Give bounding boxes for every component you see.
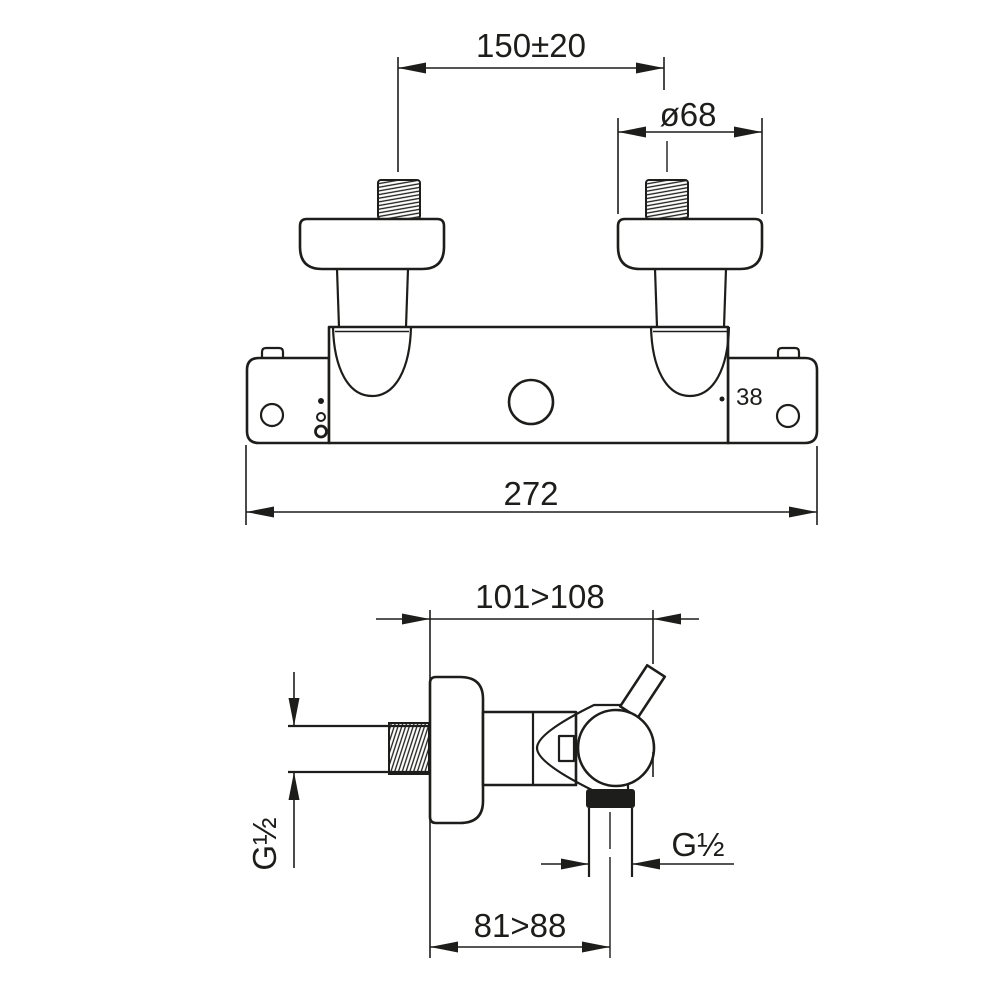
connector-neck-right <box>655 269 726 327</box>
escutcheon-left <box>300 219 444 269</box>
escutcheon-right <box>618 219 762 269</box>
arrowhead-up <box>289 772 300 800</box>
arrowhead-down <box>289 698 300 726</box>
outlet-port <box>509 380 553 424</box>
arrowhead-right <box>653 614 681 625</box>
technical-drawing: 150±20 ø68 <box>0 0 1000 1000</box>
dimension-label-center-distance: 150±20 <box>476 27 586 64</box>
outlet-nut <box>586 789 635 808</box>
dimension-center-distance: 150±20 <box>398 27 664 172</box>
front-view: 150±20 ø68 <box>246 27 817 525</box>
drawing-page: 150±20 ø68 <box>0 0 1000 1000</box>
arrowhead-left <box>246 507 274 518</box>
arrowhead-right <box>789 507 817 518</box>
indicator-dot-small <box>318 398 324 404</box>
dimension-escutcheon-diameter: ø68 <box>618 96 762 214</box>
arrowhead-right-pointing <box>561 859 589 870</box>
arrowhead-right <box>636 63 664 74</box>
dimension-outlet-offset: 81>88 <box>430 907 610 953</box>
arrowhead-left <box>618 127 646 138</box>
arrowhead-right <box>582 942 610 953</box>
handle-tab <box>262 348 283 358</box>
handle-tab <box>778 348 799 358</box>
dimension-label-escutcheon-diameter: ø68 <box>660 96 717 133</box>
dimension-outlet-thread: G½ <box>541 826 734 870</box>
arrowhead-left <box>398 63 426 74</box>
inlet-thread-label: G½ <box>246 817 283 870</box>
arrowhead-left <box>402 614 430 625</box>
handle-left <box>247 348 329 443</box>
dimension-depth: 101>108 <box>376 578 699 625</box>
connector-neck-left <box>337 269 408 327</box>
arrowhead-right <box>734 127 762 138</box>
lever-handle <box>620 665 665 717</box>
threaded-inlet-right <box>646 180 688 219</box>
valve-knob <box>578 710 654 786</box>
dimension-label-total-width: 272 <box>503 475 558 512</box>
threaded-inlet-left <box>378 180 420 219</box>
inlet-pipe-thread <box>389 723 429 774</box>
dimension-label-outlet-offset: 81>88 <box>474 907 567 944</box>
stop-marker-dot <box>720 397 725 402</box>
side-view: 101>108 <box>246 578 734 958</box>
dimension-total-width: 272 <box>246 445 817 525</box>
arrowhead-left <box>430 942 458 953</box>
arrowhead-left-pointing <box>632 859 660 870</box>
dimension-label-depth: 101>108 <box>475 578 604 615</box>
outlet-thread-label: G½ <box>671 826 724 863</box>
escutcheon-profile <box>430 677 483 823</box>
temperature-stop-label: 38 <box>736 384 763 411</box>
